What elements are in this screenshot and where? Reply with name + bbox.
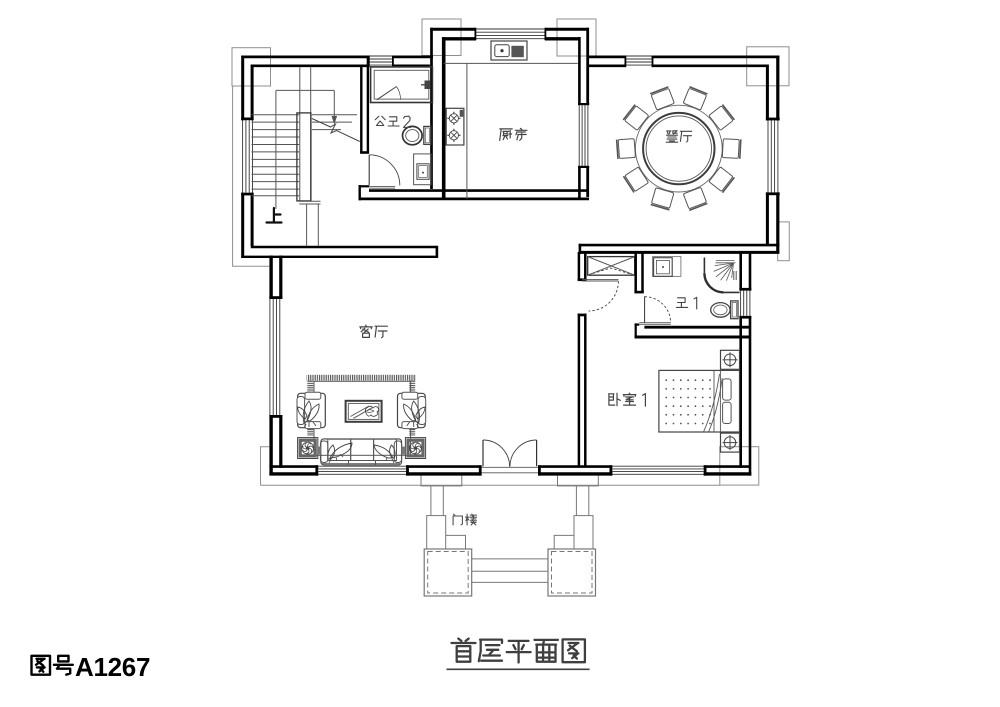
svg-text:A1267: A1267 [75, 652, 150, 682]
